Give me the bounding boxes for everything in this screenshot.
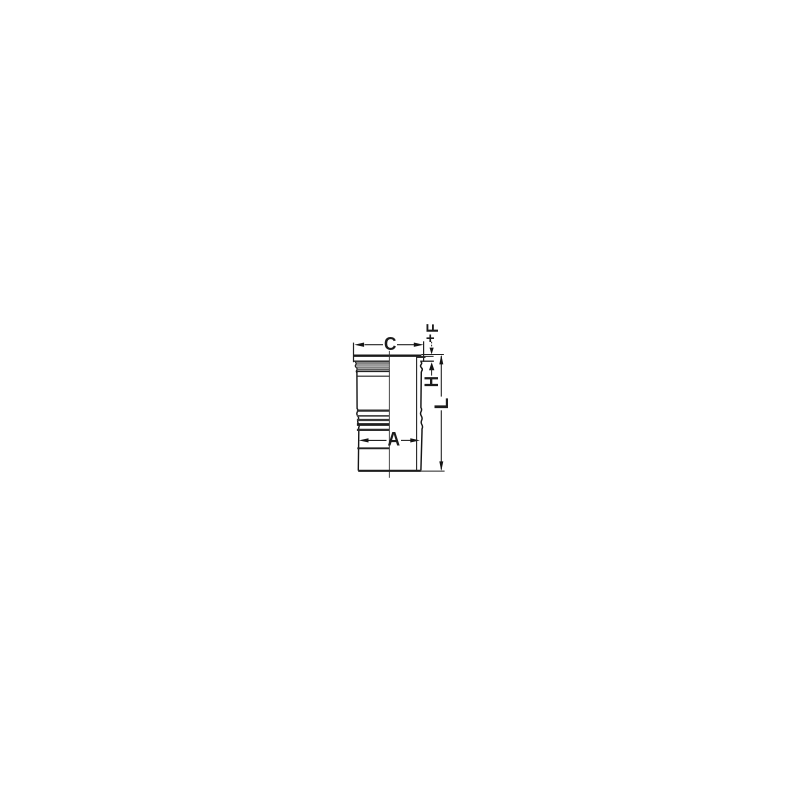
svg-text:L: L [432, 397, 453, 409]
svg-text:H: H [420, 376, 442, 387]
svg-text:+: + [426, 330, 435, 347]
svg-text:A: A [387, 428, 400, 450]
svg-text:C: C [384, 334, 397, 355]
